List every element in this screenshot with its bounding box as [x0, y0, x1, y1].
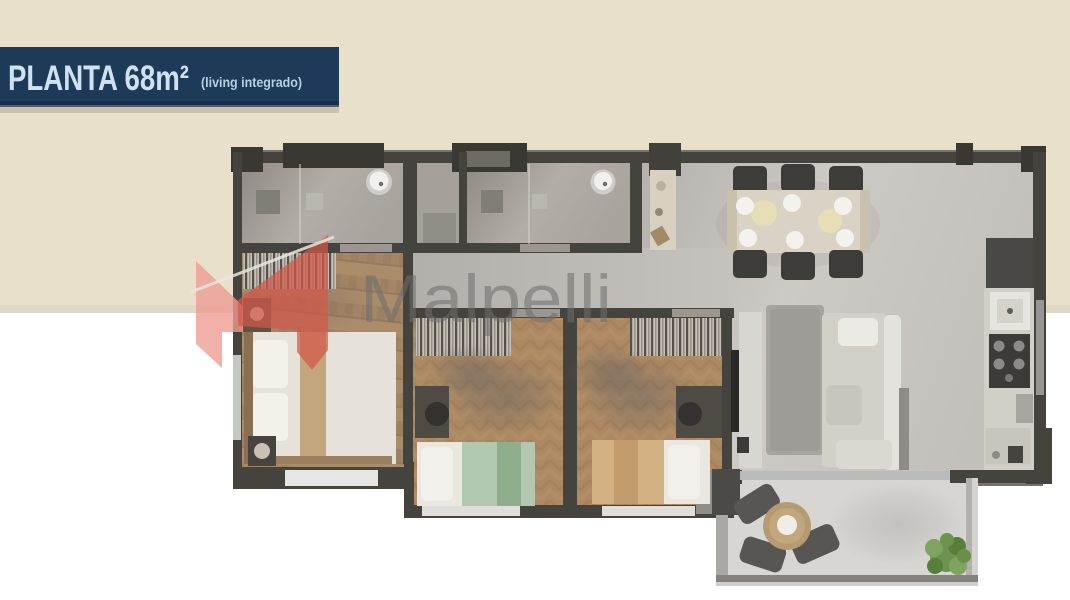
svg-text:(living integrado): (living integrado)	[201, 75, 302, 90]
svg-text:PLANTA 68m²: PLANTA 68m²	[8, 59, 189, 98]
svg-text:Malpelli: Malpelli	[360, 261, 612, 337]
